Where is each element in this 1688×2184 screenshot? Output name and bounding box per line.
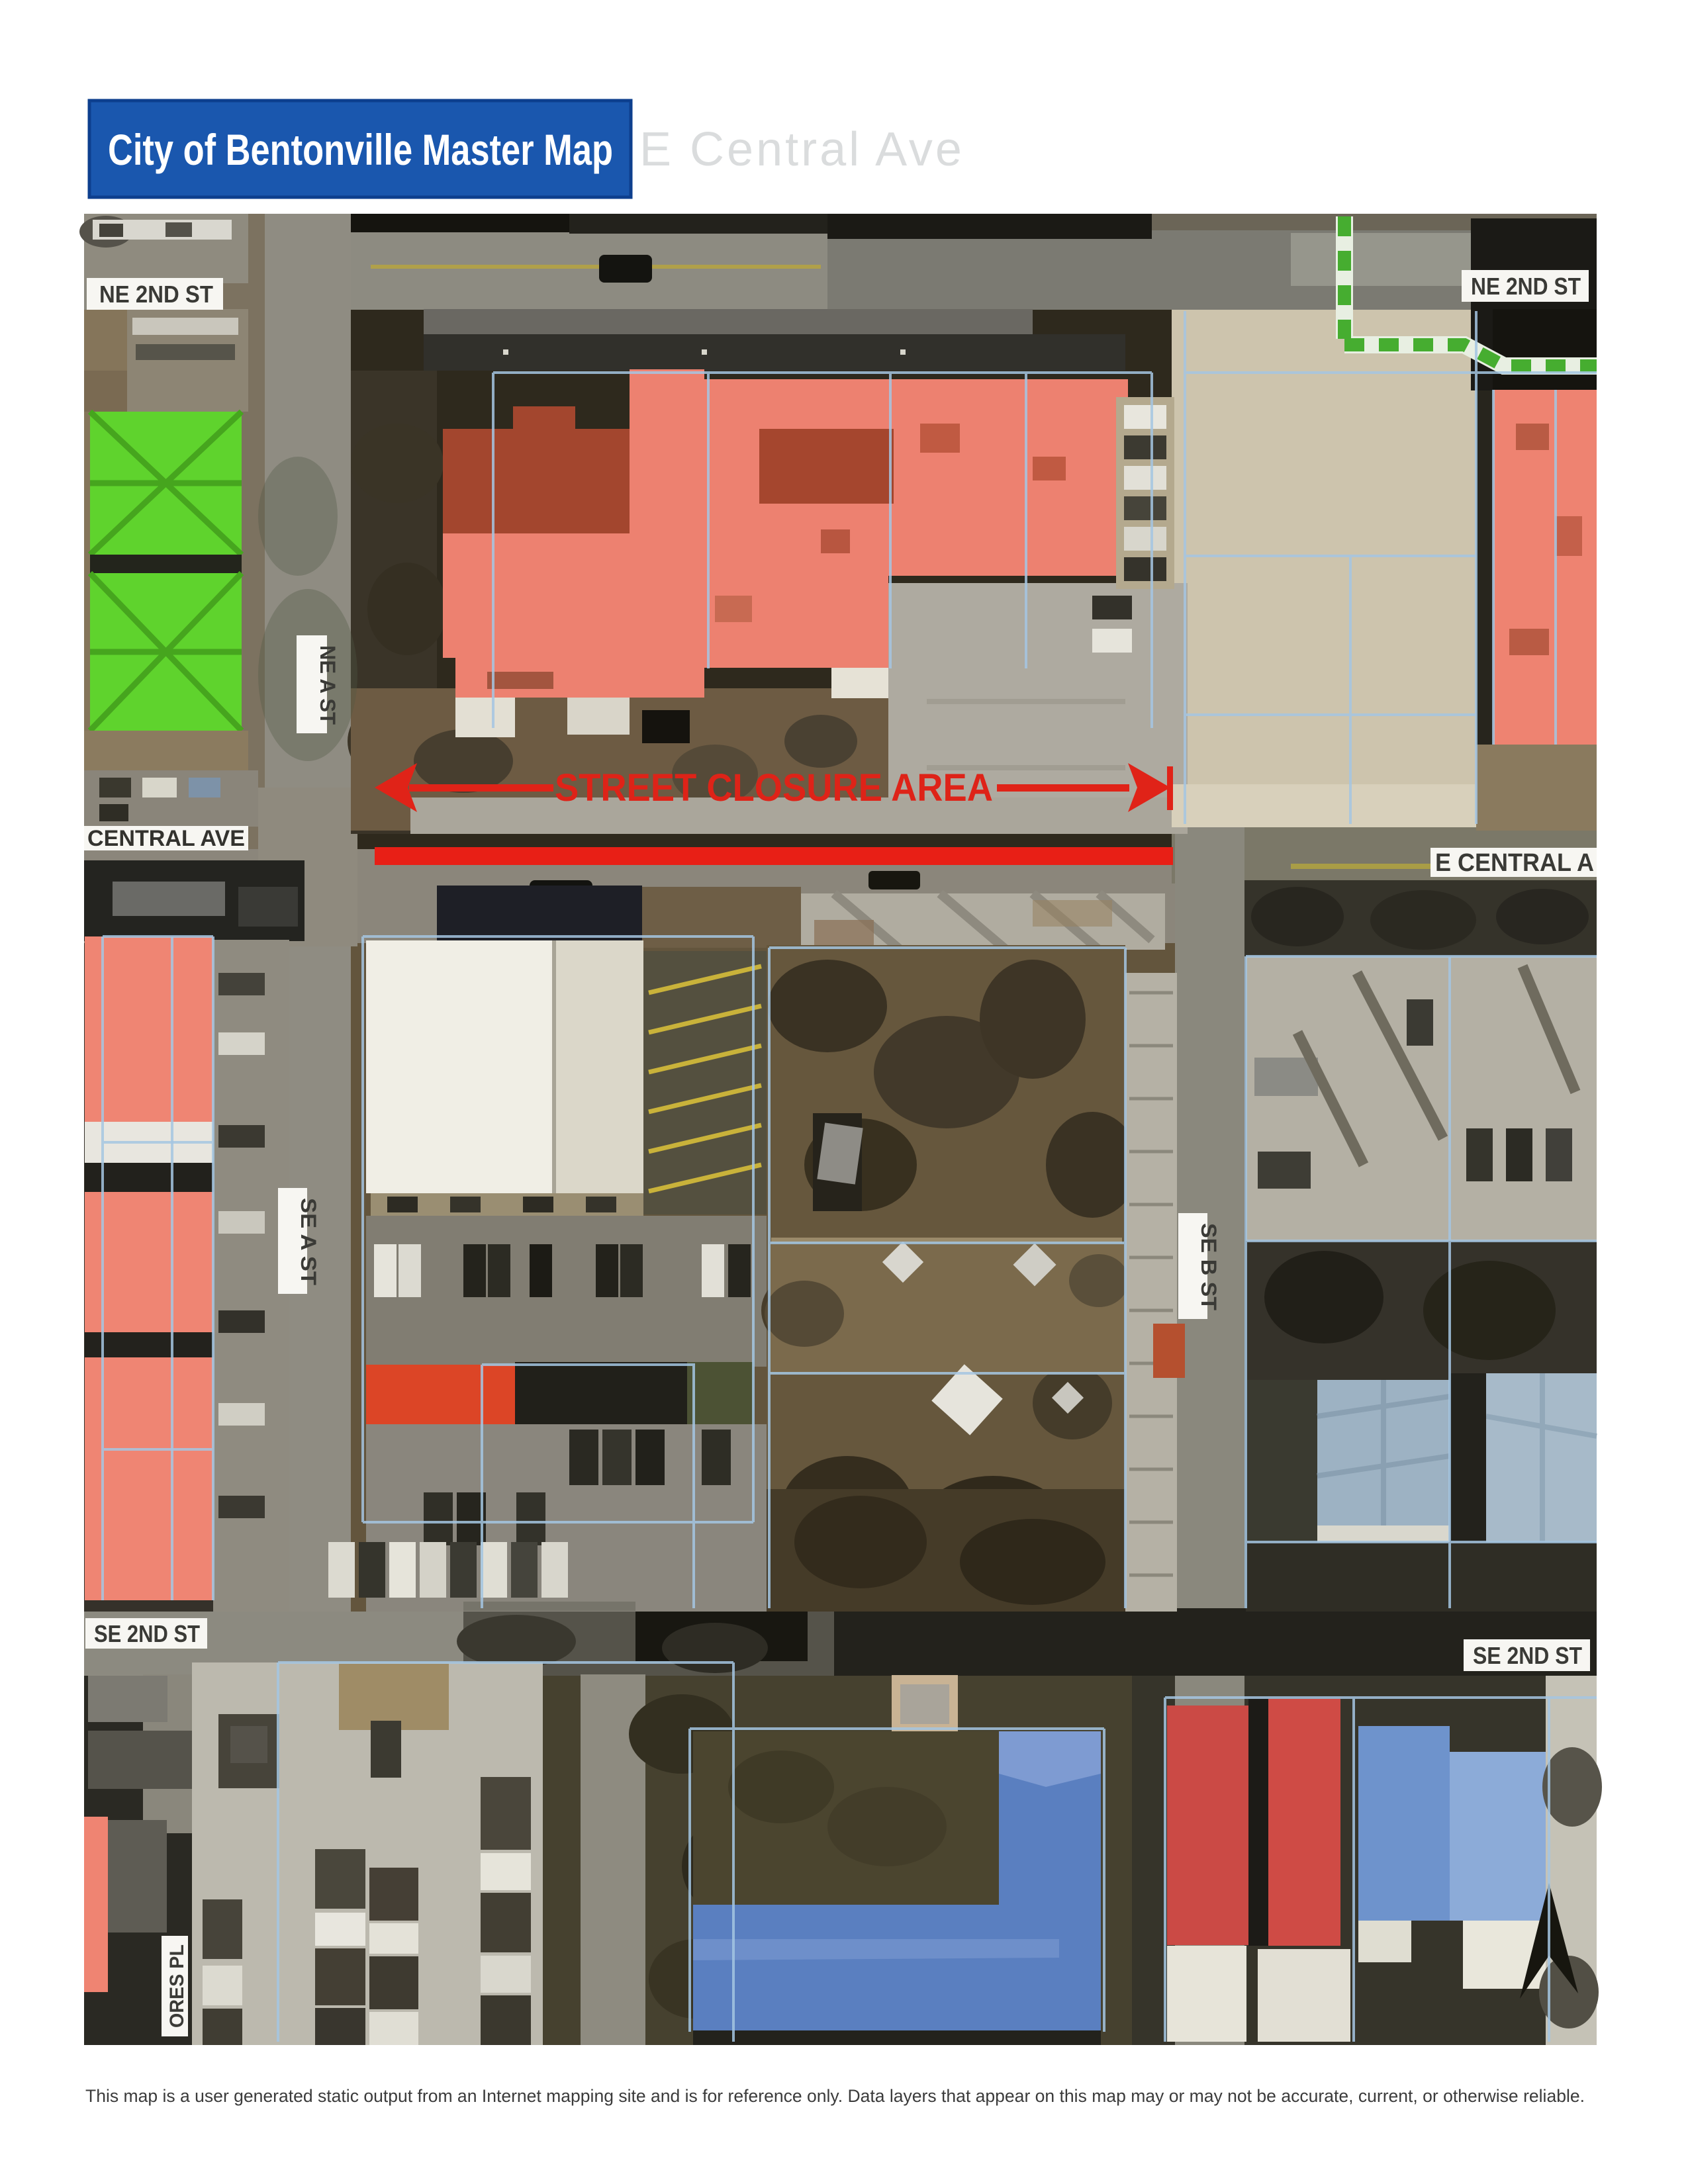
svg-text:This map is a user generated s: This map is a user generated static outp… <box>85 2086 1585 2106</box>
svg-text:SE B ST: SE B ST <box>1197 1223 1221 1310</box>
svg-text:SE A ST: SE A ST <box>297 1198 320 1285</box>
svg-text:CENTRAL AVE: CENTRAL AVE <box>87 826 245 851</box>
svg-text:NE A ST: NE A ST <box>316 645 340 725</box>
svg-text:ORES PL: ORES PL <box>166 1944 188 2028</box>
svg-text:E Central Ave: E Central Ave <box>639 123 964 176</box>
svg-text:E CENTRAL A: E CENTRAL A <box>1435 849 1594 877</box>
svg-text:City of Bentonville Master Map: City of Bentonville Master Map <box>108 125 613 174</box>
svg-text:NE 2ND ST: NE 2ND ST <box>99 281 213 308</box>
svg-text:NE 2ND ST: NE 2ND ST <box>1471 273 1581 300</box>
svg-text:STREET CLOSURE AREA: STREET CLOSURE AREA <box>555 766 993 809</box>
svg-text:SE 2ND ST: SE 2ND ST <box>1473 1642 1582 1669</box>
svg-text:SE 2ND ST: SE 2ND ST <box>94 1620 200 1647</box>
